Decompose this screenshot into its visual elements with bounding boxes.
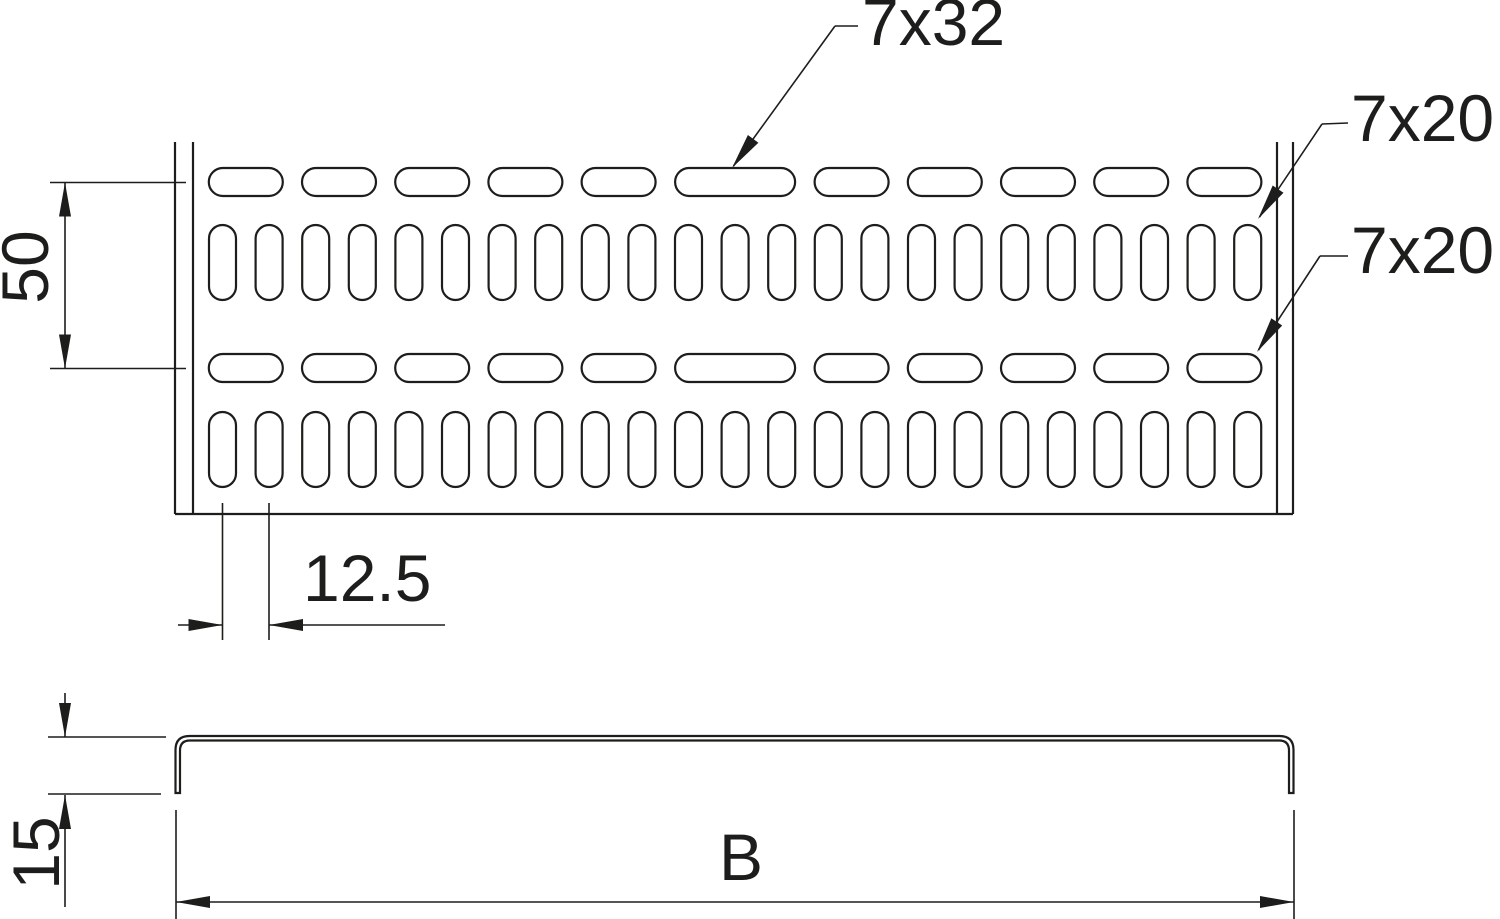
leader-7x32 bbox=[732, 26, 858, 168]
slot-pattern bbox=[209, 168, 1262, 487]
plan-view bbox=[175, 142, 1293, 514]
dim-label-slot-7x32: 7x32 bbox=[862, 0, 1005, 55]
dim-label-slot-7x20-vertical: 7x20 bbox=[1351, 85, 1494, 151]
profile-outline bbox=[176, 736, 1294, 793]
technical-drawing-canvas: 7x32 7x20 7x20 50 12.5 15 B bbox=[0, 0, 1500, 919]
leader-7x20-vertical bbox=[1258, 123, 1348, 219]
dim-label-width-B: B bbox=[719, 824, 763, 890]
dim-label-slot-7x20-horizontal: 7x20 bbox=[1351, 217, 1494, 283]
dim-label-height-15: 15 bbox=[3, 816, 69, 889]
dimension-50 bbox=[50, 183, 186, 369]
line-work-svg bbox=[0, 0, 1500, 919]
dim-label-row-spacing-50: 50 bbox=[0, 230, 58, 303]
leader-7x20-horizontal bbox=[1257, 256, 1348, 352]
dim-label-pitch-12-5: 12.5 bbox=[303, 545, 431, 611]
profile-view bbox=[176, 736, 1294, 793]
